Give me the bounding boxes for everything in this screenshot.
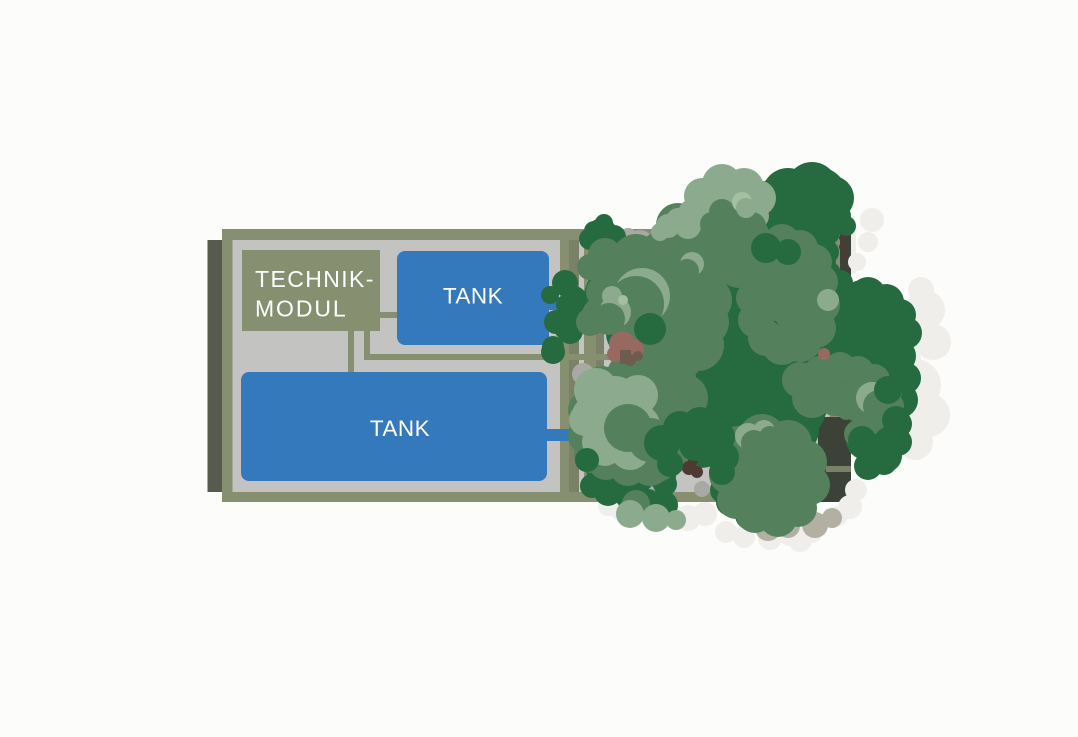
svg-text:MODUL: MODUL bbox=[255, 296, 348, 322]
svg-text:TANK: TANK bbox=[443, 284, 503, 309]
svg-text:TANK: TANK bbox=[370, 416, 430, 441]
svg-text:TECHNIK-: TECHNIK- bbox=[255, 266, 375, 292]
